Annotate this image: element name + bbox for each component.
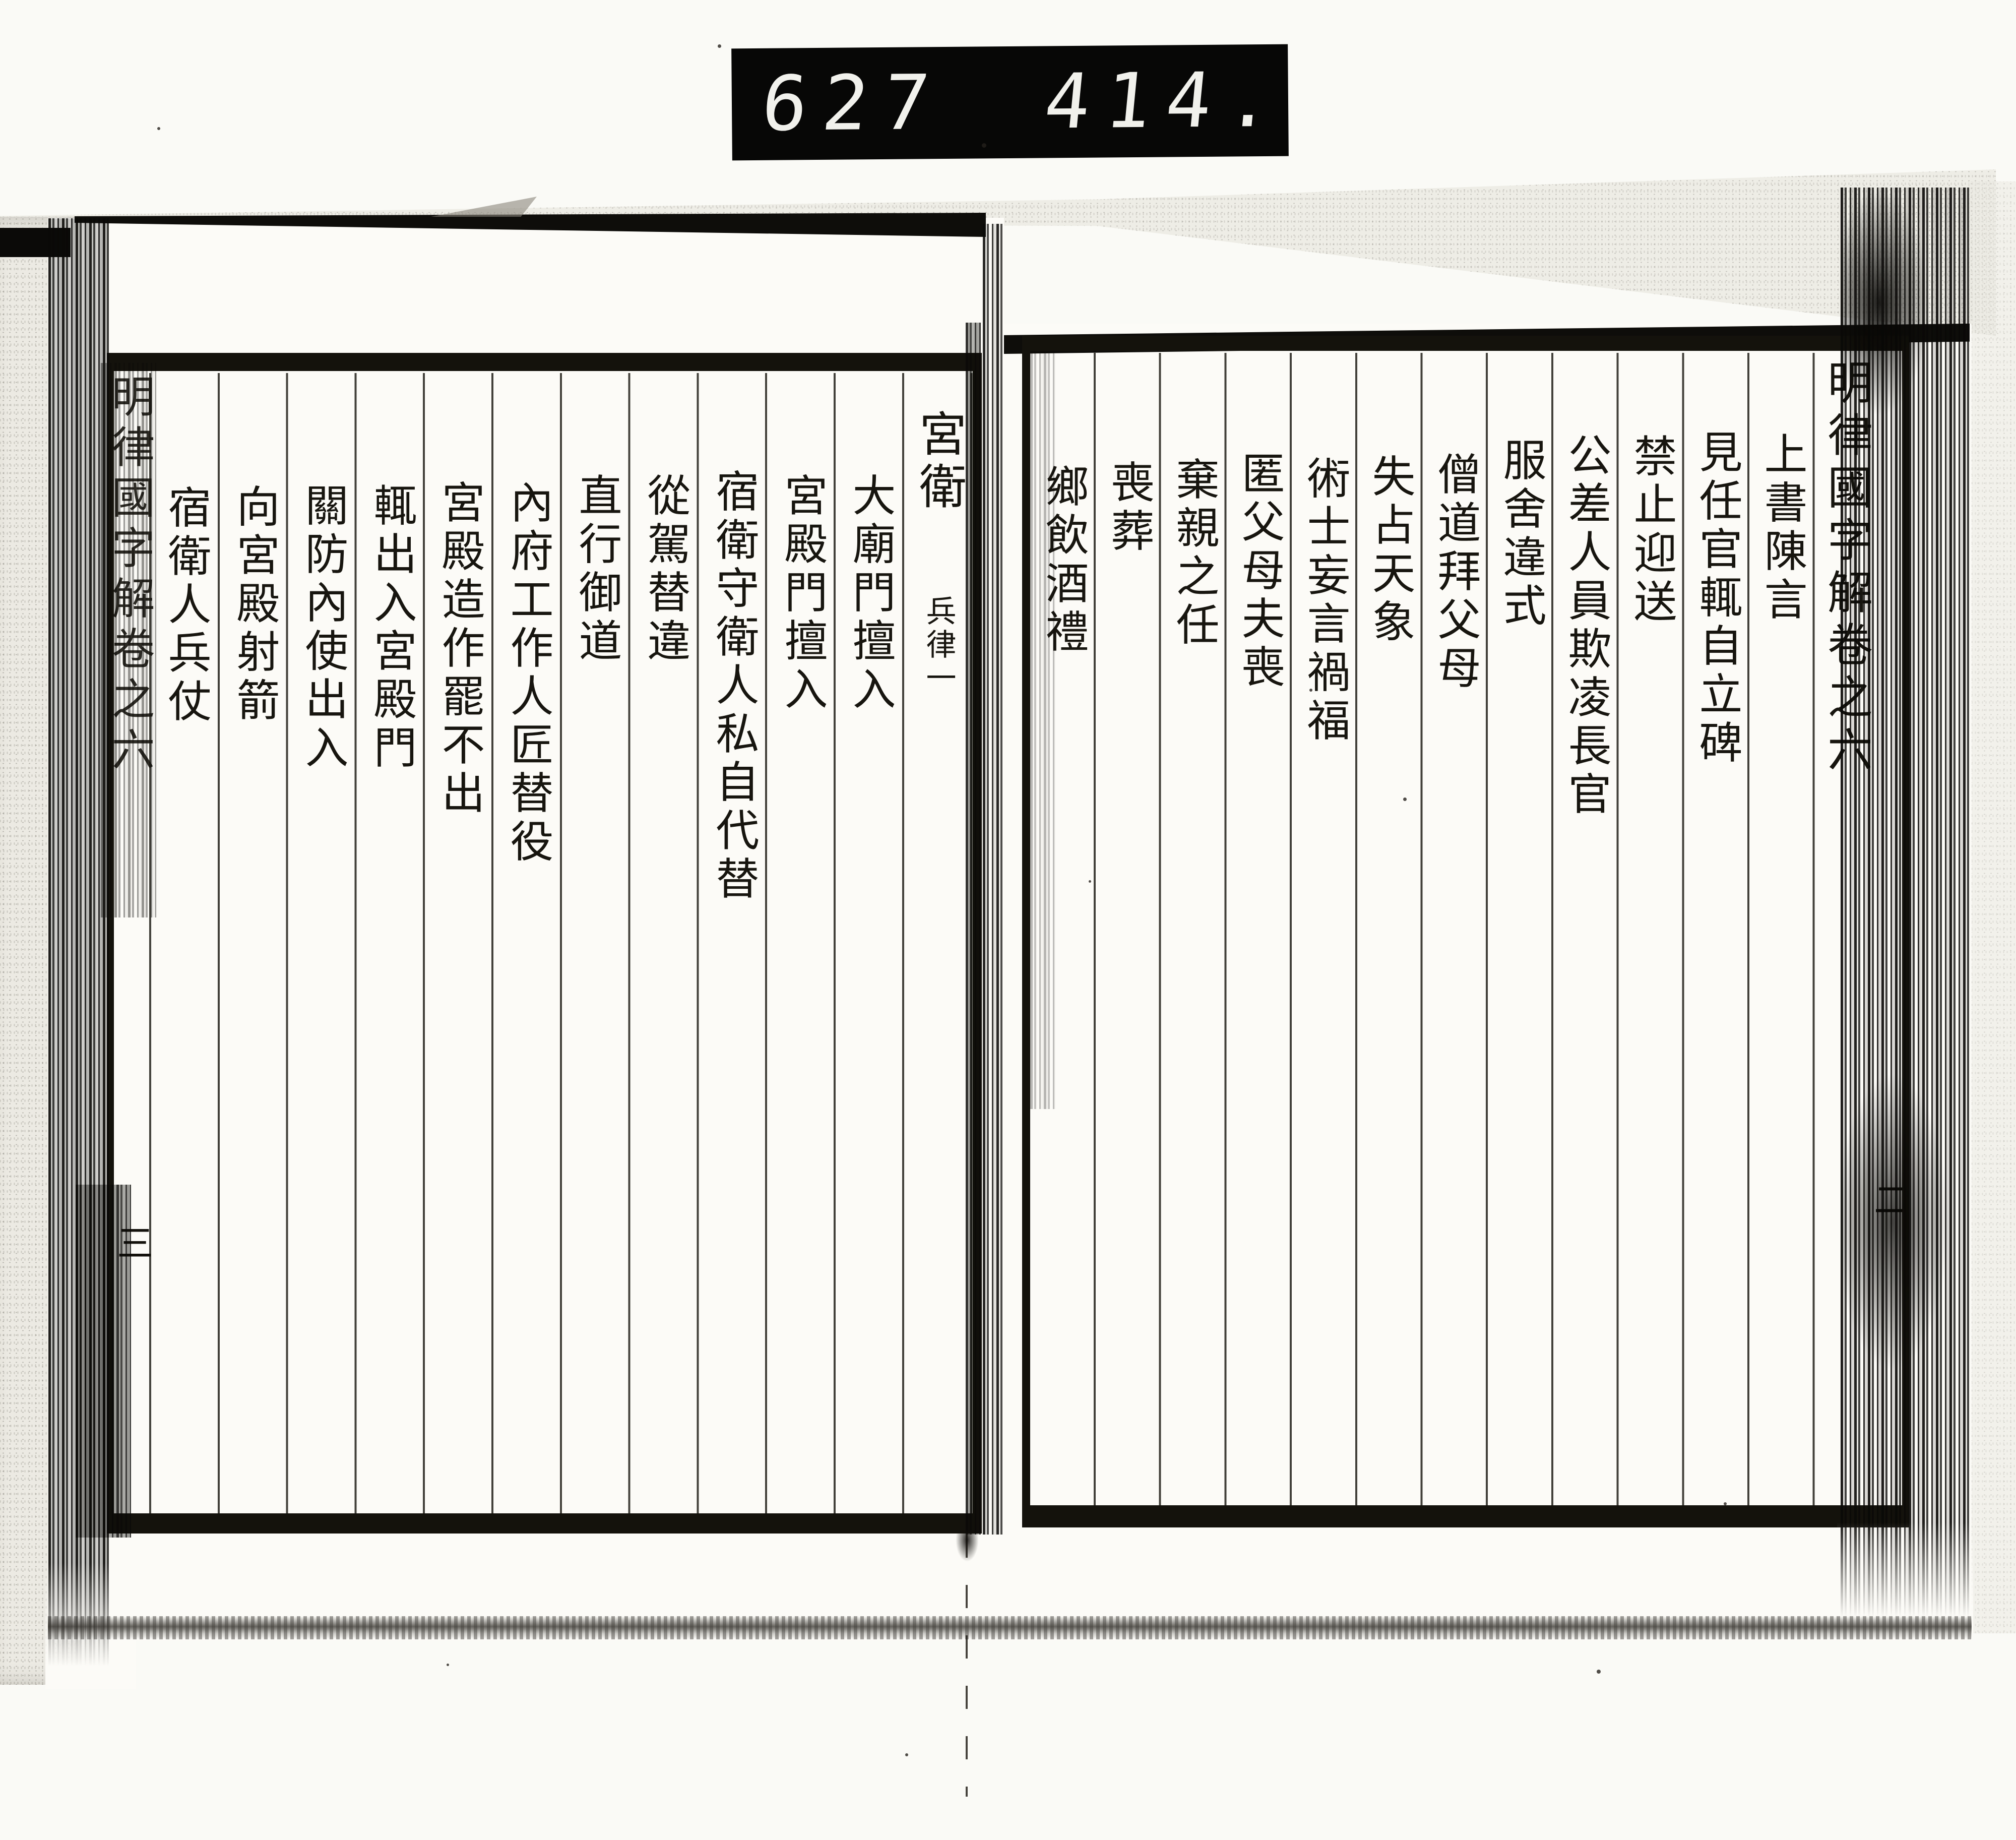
toc-entry: 向宮殿射箭 (220, 484, 288, 1502)
scan-speck (1309, 689, 1312, 692)
frame-counter-left-digits: 627 (758, 59, 949, 148)
toc-entry: 宮殿造作罷不出 (425, 480, 493, 1503)
fold-crease-line (966, 1535, 968, 1797)
toc-entry: 直行御道 (562, 473, 631, 1501)
right-edge-streak-band (1841, 188, 1970, 1624)
frame-counter-display: 627 414. (731, 44, 1289, 161)
chapter-heading-main: 宮衛 (911, 409, 966, 514)
left-banxin-smudge (101, 363, 156, 917)
chapter-heading: 宮衛 兵律一 (904, 409, 973, 1493)
scan-speck (982, 143, 986, 148)
toc-entry: 服舍違式 (1488, 438, 1553, 1496)
toc-entry: 輒出入宮殿門 (357, 483, 425, 1501)
scan-speck (1597, 1670, 1601, 1674)
toc-entry: 上書陳言 (1749, 432, 1814, 1490)
toc-entry: 宿衛守衛人私自代替 (699, 469, 768, 1507)
toc-entry: 內府工作人匠替役 (493, 480, 562, 1503)
toc-entry: 公差人員欺凌長官 (1553, 433, 1618, 1491)
scan-noise-right-margin (1968, 181, 2016, 1633)
toc-entry: 棄親之任 (1161, 457, 1226, 1505)
toc-entry: 宮殿門擅入 (768, 473, 836, 1501)
scan-speck (905, 1753, 908, 1756)
scan-speck (447, 1664, 449, 1666)
toc-entry: 禁止迎送 (1618, 434, 1684, 1492)
toc-entry: 見任官輒自立碑 (1684, 430, 1749, 1488)
toc-entry: 僧道拜父母 (1422, 452, 1488, 1500)
fold-crease-blob (956, 1530, 979, 1562)
toc-entry: 術士妄言禍福 (1292, 456, 1357, 1504)
toc-entry: 關防內使出入 (288, 483, 357, 1501)
scan-speck (1724, 1502, 1727, 1505)
toc-entry: 失占天象 (1357, 454, 1422, 1502)
page-bottom-edge (48, 1616, 1972, 1639)
gutter-fold-bar-inner (966, 323, 981, 1535)
scan-speck (1403, 798, 1407, 801)
toc-entry: 大廟門擅入 (836, 473, 904, 1501)
scanned-book-spread: 上書陳言 見任官輒自立碑 禁止迎送 公差人員欺凌長官 服舍違式 僧道拜父母 失占… (0, 0, 2016, 1840)
gutter-streaks-right (1030, 353, 1055, 1109)
toc-entry: 匿父母夫喪 (1226, 451, 1292, 1499)
toc-entry: 喪葬 (1096, 460, 1161, 1498)
scan-speck (1089, 880, 1091, 883)
scan-smudge-wedge (431, 197, 537, 217)
scan-speck (718, 44, 721, 48)
left-band-dark-blob (76, 1185, 131, 1538)
toc-entry: 從駕替違 (631, 473, 699, 1501)
frame-counter-right-digits: 414. (1040, 56, 1291, 146)
gutter-fold-bar (983, 224, 1004, 1535)
toc-entry: 宿衛人兵仗 (151, 485, 220, 1503)
chapter-heading-sub: 兵律一 (921, 595, 956, 695)
scan-speck (157, 127, 160, 130)
